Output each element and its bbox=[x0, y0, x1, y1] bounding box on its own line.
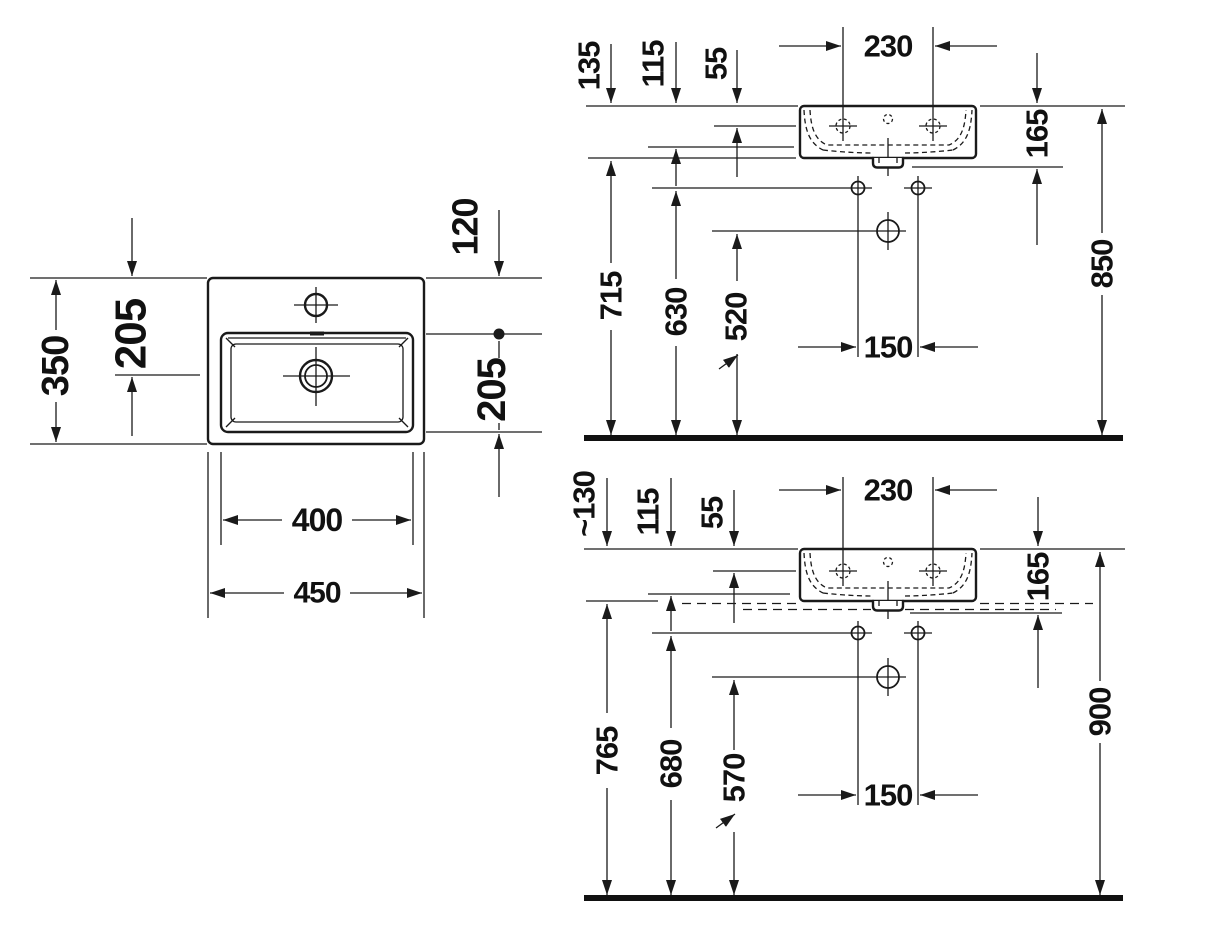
dim-label-135: 135 bbox=[572, 41, 607, 90]
dim-label-630: 630 bbox=[659, 288, 694, 337]
dim-label-520: 520 bbox=[719, 293, 754, 342]
dim-back-to-drain: 205 bbox=[107, 218, 201, 436]
dim-label-120: 120 bbox=[445, 198, 486, 255]
dim-floor-to-waste-counter: 570 bbox=[716, 680, 752, 895]
dim-rim-to-counter: ~130 bbox=[567, 471, 608, 546]
dim-rim-to-outlet-wall: 165 bbox=[1020, 53, 1055, 245]
dim-label-230-counter: 230 bbox=[864, 473, 913, 508]
dim-label-130: ~130 bbox=[567, 471, 602, 537]
tap-hole-plan bbox=[294, 287, 338, 323]
dim-label-680: 680 bbox=[654, 740, 689, 789]
dim-label-450: 450 bbox=[293, 577, 340, 610]
dim-floor-to-underside-counter: 765 bbox=[590, 604, 625, 895]
plan-view: 350 205 120 205 400 bbox=[30, 198, 542, 618]
washbasin-technical-drawing: 350 205 120 205 400 bbox=[0, 0, 1220, 944]
drain-plan bbox=[283, 347, 350, 406]
drain-outlet-front bbox=[873, 601, 903, 611]
plan-bowl-inner bbox=[231, 344, 403, 422]
dim-label-230-wall: 230 bbox=[864, 29, 913, 64]
dim-label-150-wall: 150 bbox=[864, 330, 913, 365]
dim-rim-to-underside-wall: 135 bbox=[572, 41, 612, 103]
dim-label-765: 765 bbox=[590, 726, 625, 775]
dim-label-205-right: 205 bbox=[470, 357, 514, 421]
technical-drawing-page: 350 205 120 205 400 bbox=[0, 0, 1220, 944]
dim-bowl-width: 400 bbox=[221, 452, 413, 545]
dim-label-715: 715 bbox=[594, 271, 629, 320]
dim-label-55-wall: 55 bbox=[699, 47, 734, 80]
dim-label-350: 350 bbox=[35, 336, 77, 396]
dim-fixing-spacing-counter: 150 bbox=[798, 621, 978, 813]
variable-height-arrow bbox=[719, 355, 738, 369]
dim-floor-to-fixing: 630 bbox=[659, 191, 694, 435]
dim-floor-to-waste: 520 bbox=[719, 234, 754, 435]
dim-floor-to-fixing-counter: 680 bbox=[654, 636, 689, 895]
dim-label-400: 400 bbox=[292, 502, 343, 538]
dim-label-115-wall: 115 bbox=[636, 40, 671, 88]
dim-label-165-wall: 165 bbox=[1020, 109, 1055, 158]
dim-label-165-counter: 165 bbox=[1021, 552, 1056, 601]
plan-bowl-outer bbox=[221, 333, 413, 432]
dim-label-900: 900 bbox=[1083, 688, 1118, 737]
washbasin-plan-outline bbox=[208, 278, 424, 444]
overflow-slot bbox=[310, 332, 324, 336]
counter-mounted-view: 230 ~130 115 55 165 765 bbox=[567, 471, 1126, 898]
dim-floor-to-rim-wall: 850 bbox=[1085, 109, 1120, 435]
dim-label-205-left: 205 bbox=[107, 298, 156, 369]
dim-label-115-counter: 115 bbox=[631, 488, 666, 536]
dim-rim-to-bowl-bottom-wall: 115 bbox=[636, 40, 677, 186]
wall-mounted-view: 230 135 115 55 165 715 6 bbox=[572, 27, 1126, 438]
dim-back-to-bowl-edge: 120 bbox=[426, 198, 542, 339]
dim-rim-to-bowl-bottom-counter: 115 bbox=[631, 478, 672, 631]
dim-label-850: 850 bbox=[1085, 240, 1120, 289]
dim-label-150-counter: 150 bbox=[864, 778, 913, 813]
dim-endpoint-dot bbox=[494, 329, 505, 340]
variable-height-arrow bbox=[716, 814, 735, 828]
dim-floor-to-underside: 715 bbox=[594, 161, 629, 435]
dim-bowl-front-depth: 205 bbox=[426, 341, 542, 497]
dim-rim-to-outlet-counter: 165 bbox=[1021, 497, 1056, 688]
dim-label-570: 570 bbox=[717, 754, 752, 803]
dim-fixing-spacing-wall: 150 bbox=[798, 176, 978, 365]
dim-label-55-counter: 55 bbox=[695, 496, 730, 529]
drain-outlet-front bbox=[873, 158, 903, 168]
